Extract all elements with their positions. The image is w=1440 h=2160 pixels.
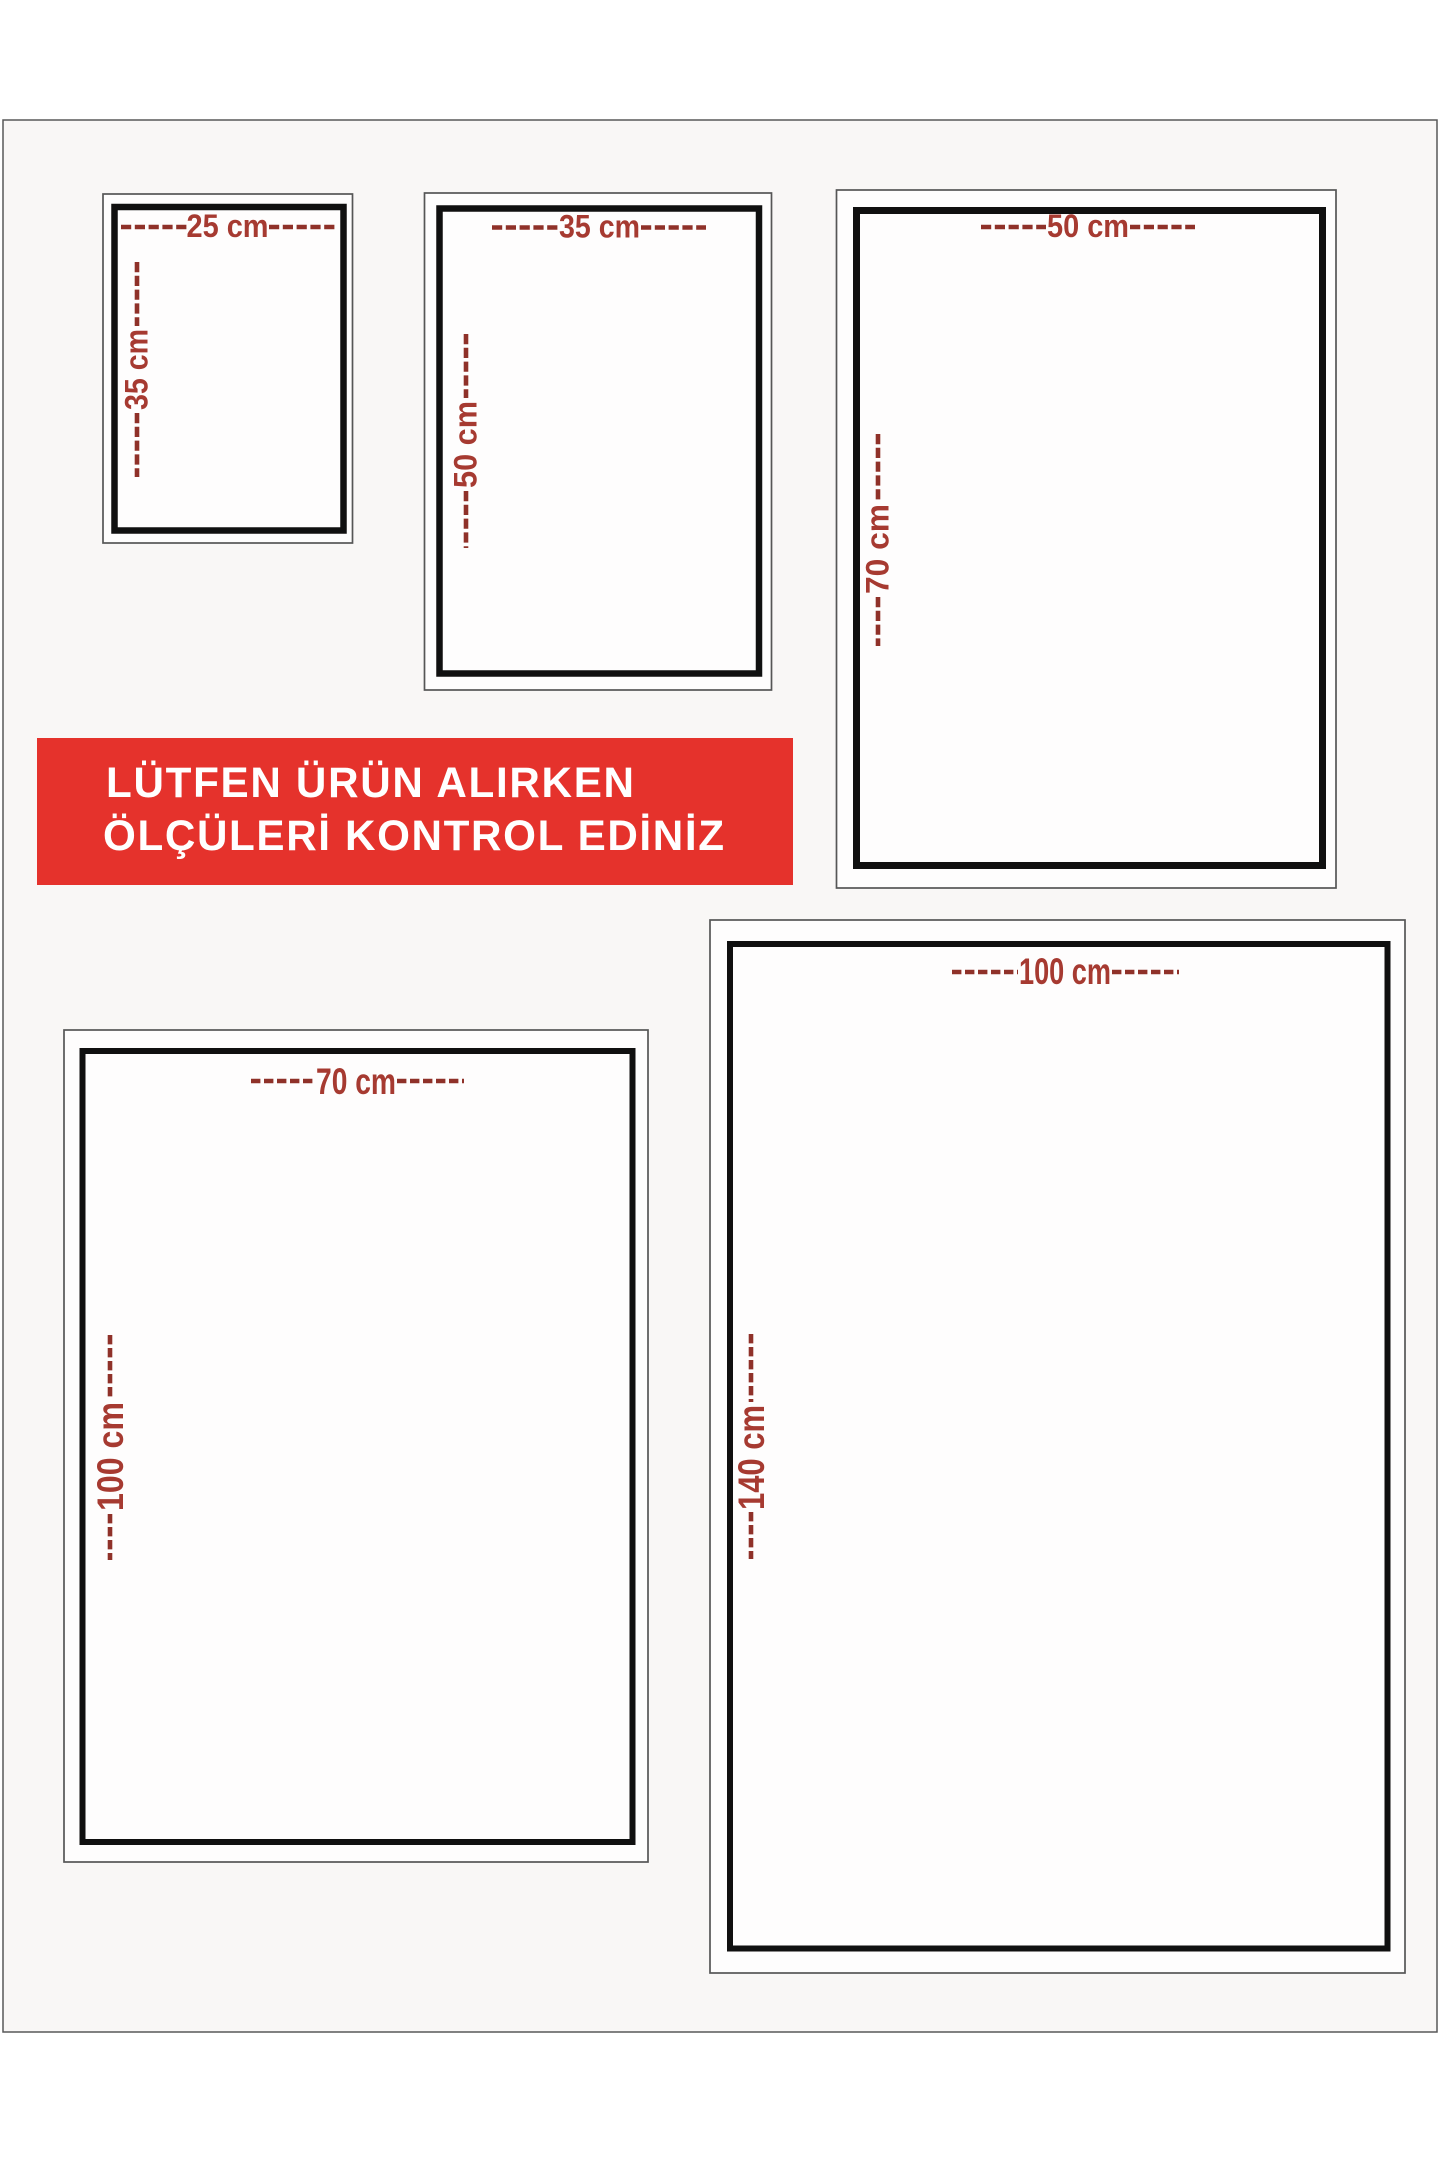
svg-text:70 cm: 70 cm <box>316 1060 396 1102</box>
svg-text:50 cm: 50 cm <box>1047 208 1129 244</box>
svg-text:35 cm: 35 cm <box>559 209 640 245</box>
svg-text:70 cm: 70 cm <box>860 504 896 594</box>
svg-text:25 cm: 25 cm <box>187 208 269 244</box>
svg-text:100 cm: 100 cm <box>89 1402 131 1511</box>
svg-text:140 cm: 140 cm <box>730 1405 772 1510</box>
svg-text:50 cm: 50 cm <box>448 401 484 488</box>
svg-text:LÜTFEN ÜRÜN ALIRKEN: LÜTFEN ÜRÜN ALIRKEN <box>106 759 634 806</box>
svg-text:100 cm: 100 cm <box>1019 950 1111 992</box>
svg-text:35 cm: 35 cm <box>119 329 155 410</box>
svg-text:ÖLÇÜLERİ KONTROL EDİNİZ: ÖLÇÜLERİ KONTROL EDİNİZ <box>103 812 724 859</box>
